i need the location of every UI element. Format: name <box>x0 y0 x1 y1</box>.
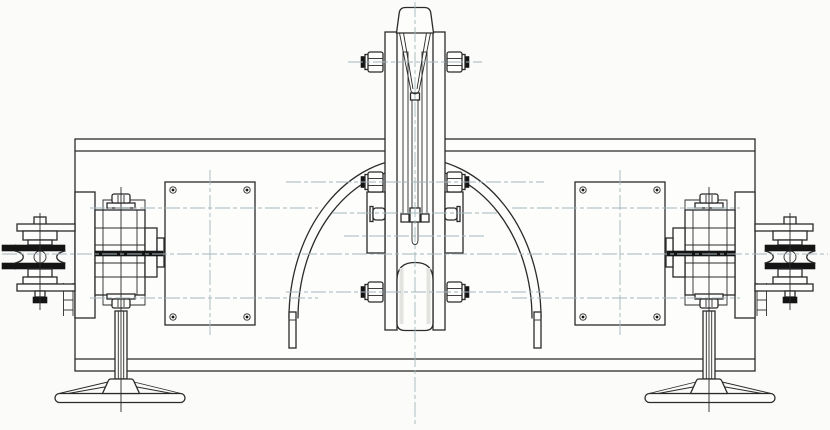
guard-arc-right-pipe <box>534 312 541 348</box>
left-rope-stub-upper <box>2 245 16 251</box>
cheek-plate-left <box>385 32 397 330</box>
drawing-canvas: Mechanical assembly front view <box>0 0 830 430</box>
left-chain-pulley: Left grooved chain pulley <box>2 213 75 310</box>
cheek-plate-right <box>433 32 445 330</box>
right-chain-pulley: Right grooved chain pulley <box>755 213 815 310</box>
side-block-left <box>367 192 385 253</box>
left-rope-stub-lower <box>2 263 16 269</box>
technical-drawing: Mechanical assembly front view <box>0 0 830 430</box>
side-block-right <box>445 192 463 253</box>
guard-arc-left-pipe <box>289 312 296 348</box>
